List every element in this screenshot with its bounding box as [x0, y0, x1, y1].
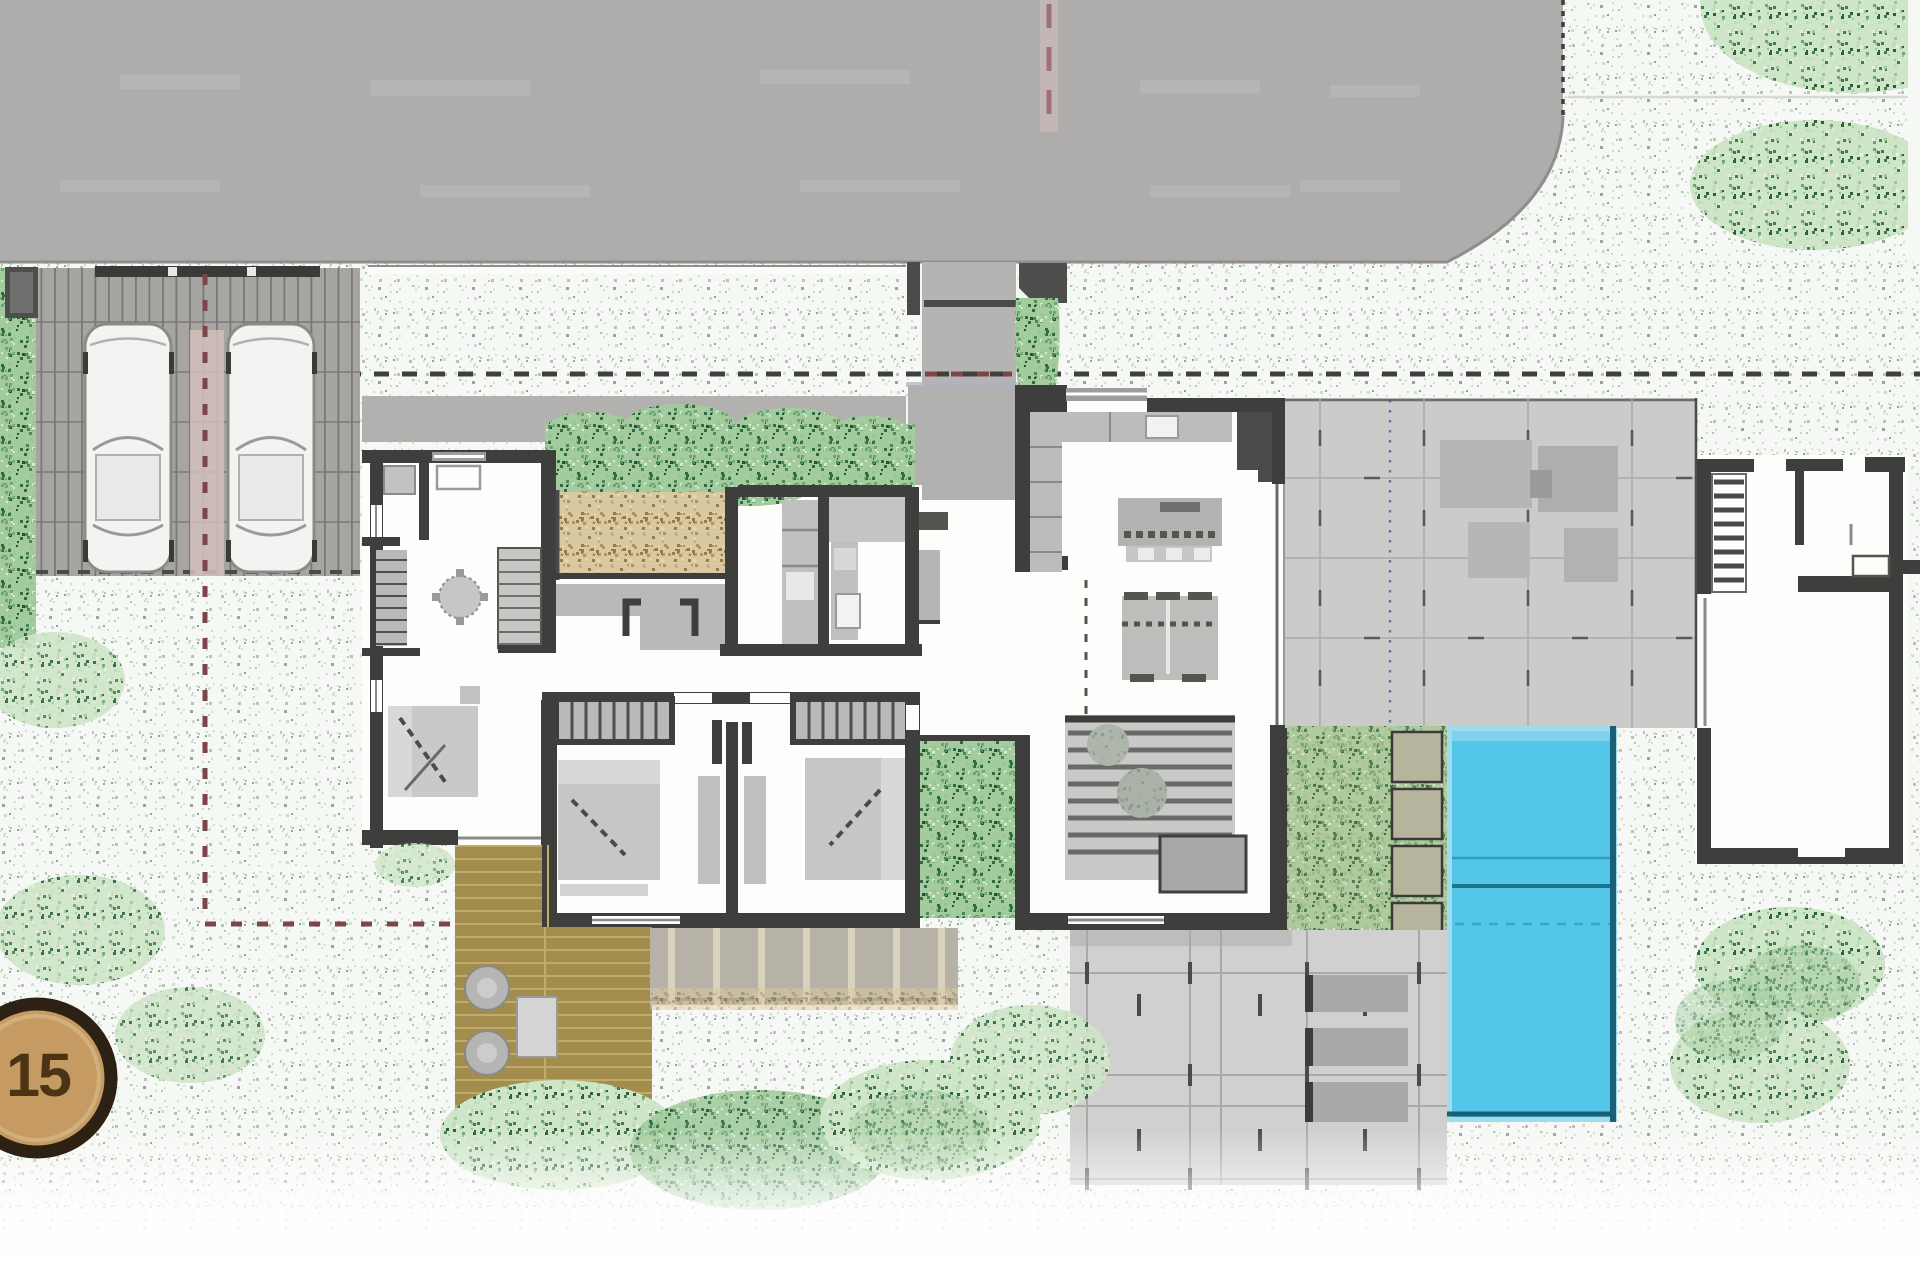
svg-text:15: 15	[6, 1041, 71, 1109]
